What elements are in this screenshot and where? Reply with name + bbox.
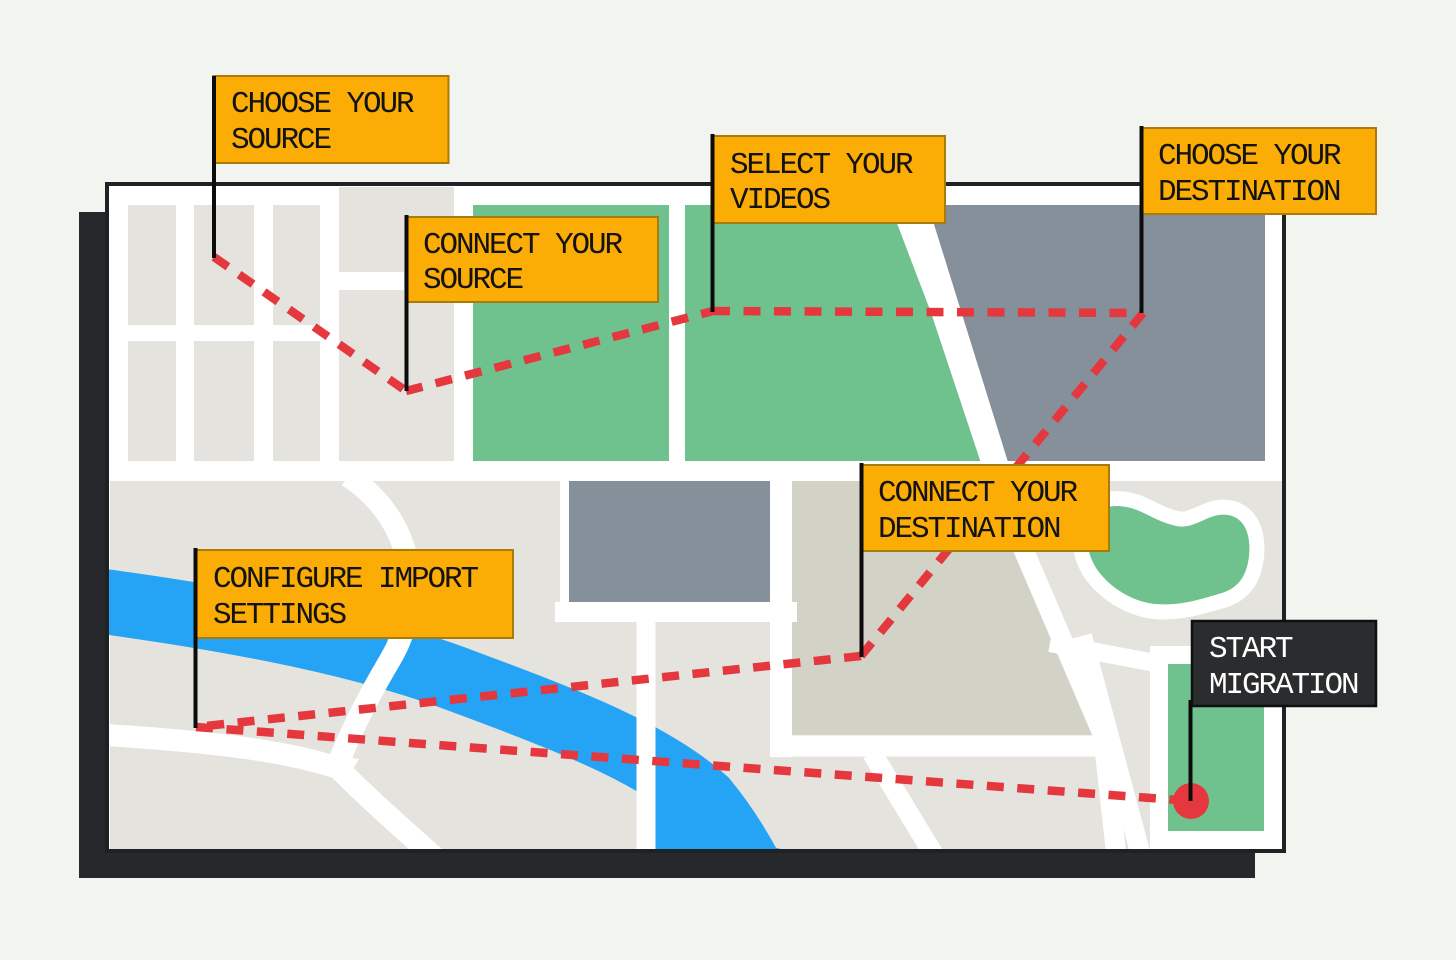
svg-text:SELECT YOUR: SELECT YOUR: [730, 148, 913, 183]
svg-text:CONNECT YOUR: CONNECT YOUR: [423, 228, 623, 263]
svg-text:SETTINGS: SETTINGS: [213, 598, 347, 633]
svg-text:SOURCE: SOURCE: [231, 123, 331, 158]
svg-text:DESTINATION: DESTINATION: [1158, 175, 1340, 210]
svg-text:VIDEOS: VIDEOS: [730, 183, 831, 218]
svg-text:DESTINATION: DESTINATION: [878, 512, 1060, 547]
svg-text:CONNECT YOUR: CONNECT YOUR: [878, 476, 1078, 511]
svg-text:CONFIGURE IMPORT: CONFIGURE IMPORT: [213, 562, 479, 597]
svg-text:CHOOSE YOUR: CHOOSE YOUR: [1158, 139, 1341, 174]
svg-text:MIGRATION: MIGRATION: [1209, 668, 1358, 703]
svg-text:SOURCE: SOURCE: [423, 263, 523, 298]
svg-text:START: START: [1209, 632, 1293, 667]
svg-text:CHOOSE YOUR: CHOOSE YOUR: [231, 87, 414, 122]
